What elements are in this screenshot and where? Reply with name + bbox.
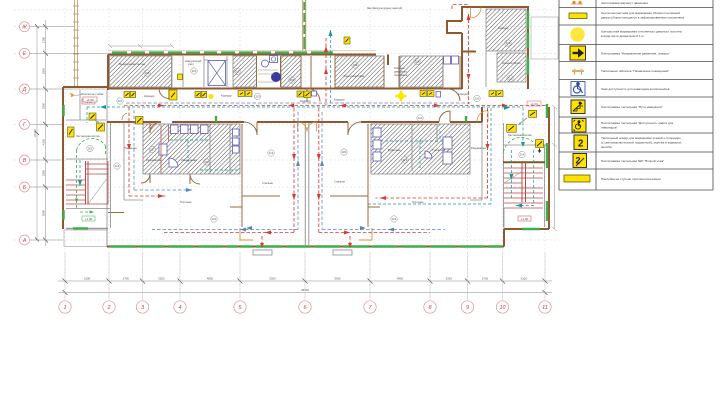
svg-text:218: 218 bbox=[204, 160, 209, 164]
svg-text:в виде круга диаметром 0,1 м: в виде круга диаметром 0,1 м bbox=[601, 34, 644, 38]
svg-text:Лента контрастная для маркиров: Лента контрастная для маркировки сборки … bbox=[601, 11, 680, 15]
svg-text:Тактильная табличка "Назначени: Тактильная табличка "Назначение помещени… bbox=[601, 69, 669, 73]
svg-text:(с светонакопительной подсветк: (с светонакопительной подсветкой), монта… bbox=[601, 141, 682, 145]
svg-text:Лестничная клетка: Лестничная клетка bbox=[508, 133, 532, 137]
svg-text:Пиктограмма тактильная №П "Вто: Пиктограмма тактильная №П "Второй этаж" bbox=[601, 159, 664, 163]
svg-text:3100: 3100 bbox=[521, 277, 528, 281]
svg-text:212: 212 bbox=[508, 77, 513, 81]
svg-text:2: 2 bbox=[578, 139, 584, 150]
svg-text:5300: 5300 bbox=[334, 277, 341, 281]
svg-text:+1.00: +1.00 bbox=[86, 98, 94, 102]
svg-text:Буфетная: Буфетная bbox=[388, 148, 401, 152]
svg-text:2700: 2700 bbox=[482, 277, 489, 281]
svg-text:Ж: Ж bbox=[21, 25, 27, 31]
svg-text:Гостиная: Гостиная bbox=[412, 200, 424, 204]
svg-text:219: 219 bbox=[269, 151, 274, 155]
svg-text:+1.00: +1.00 bbox=[521, 217, 529, 221]
svg-text:3080: 3080 bbox=[41, 209, 45, 216]
svg-text:2700: 2700 bbox=[123, 277, 130, 281]
svg-text:2900: 2900 bbox=[41, 67, 45, 74]
svg-text:207: 207 bbox=[235, 70, 240, 74]
svg-text:203: 203 bbox=[255, 95, 260, 99]
svg-text:222: 222 bbox=[212, 217, 217, 221]
svg-text:Коридор: Коридор bbox=[144, 94, 155, 98]
svg-text:201: 201 bbox=[118, 99, 123, 103]
svg-text:Умывальная: Умывальная bbox=[181, 158, 197, 162]
svg-text:Коридор: Коридор bbox=[300, 99, 311, 103]
svg-text:Розетка на стойке: Розетка на стойке bbox=[81, 92, 104, 96]
svg-text:+1.00: +1.00 bbox=[85, 217, 93, 221]
svg-text:Комната: Комната bbox=[394, 66, 405, 70]
svg-text:Спальня: Спальня bbox=[334, 180, 345, 184]
svg-text:1: 1 bbox=[63, 305, 66, 311]
svg-text:Знак доступности для инвалидов: Знак доступности для инвалидов-колясочни… bbox=[601, 87, 670, 91]
svg-text:220: 220 bbox=[342, 150, 347, 154]
svg-text:Медицинская сестра: Медицинская сестра bbox=[119, 62, 145, 66]
svg-text:221: 221 bbox=[403, 158, 408, 162]
svg-text:208: 208 bbox=[353, 63, 358, 67]
svg-text:21320: 21320 bbox=[33, 129, 37, 137]
svg-text:Гостиная: Гостиная bbox=[180, 200, 192, 204]
svg-text:Пиктограмма "Направление движе: Пиктограмма "Направление движения, повор… bbox=[601, 52, 671, 56]
svg-text:209: 209 bbox=[415, 60, 420, 64]
svg-text:215: 215 bbox=[115, 164, 120, 168]
svg-text:Лестничная клетка: Лестничная клетка bbox=[76, 134, 100, 138]
svg-text:11: 11 bbox=[542, 305, 548, 311]
svg-text:205: 205 bbox=[145, 71, 150, 75]
svg-text:инвалидов": инвалидов" bbox=[601, 126, 618, 130]
svg-text:Коридор: Коридор bbox=[221, 94, 232, 98]
svg-text:4: 4 bbox=[178, 305, 181, 311]
svg-text:4850: 4850 bbox=[397, 277, 404, 281]
svg-text:2900: 2900 bbox=[41, 102, 45, 109]
svg-text:Раздевалка: Раздевалка bbox=[471, 146, 486, 150]
svg-text:желоба: желоба bbox=[601, 145, 612, 149]
svg-text:Зал физкультурных занятий: Зал физкультурных занятий bbox=[367, 6, 403, 10]
svg-text:4105: 4105 bbox=[41, 138, 45, 145]
svg-text:Коридор: Коридор bbox=[498, 26, 509, 30]
svg-text:двери (сборки находятся в зафи: двери (сборки находятся в зафиксированно… bbox=[601, 16, 684, 20]
svg-text:2900: 2900 bbox=[41, 169, 45, 176]
svg-text:Комната белья: Комната белья bbox=[502, 61, 521, 65]
svg-text:223: 223 bbox=[392, 217, 397, 221]
svg-text:узел: узел bbox=[188, 63, 194, 66]
svg-text:персонала: персонала bbox=[394, 74, 408, 77]
svg-text:224: 224 bbox=[418, 116, 423, 120]
svg-text:Наклейка на ступени противоско: Наклейка на ступени противоскользящая bbox=[601, 177, 661, 181]
svg-text:Туалетная: Туалетная bbox=[432, 148, 445, 152]
svg-text:217: 217 bbox=[150, 148, 155, 152]
svg-text:Коридор: Коридор bbox=[334, 98, 345, 102]
svg-text:202: 202 bbox=[88, 147, 93, 151]
svg-text:Контрастная маркировка стеклян: Контрастная маркировка стеклянного дверн… bbox=[601, 30, 682, 34]
svg-text:204: 204 bbox=[192, 69, 197, 73]
svg-text:Пиктограмма тактильная "Пути э: Пиктограмма тактильная "Пути эвакуации" bbox=[601, 105, 663, 109]
svg-text:Приёмная: Приёмная bbox=[124, 146, 137, 150]
svg-text:2180: 2180 bbox=[41, 36, 45, 43]
svg-text:214: 214 bbox=[520, 153, 525, 157]
svg-text:А: А bbox=[22, 238, 27, 244]
svg-text:213: 213 bbox=[506, 41, 511, 45]
svg-text:3200: 3200 bbox=[158, 277, 165, 281]
svg-text:4850: 4850 bbox=[207, 277, 214, 281]
svg-text:9: 9 bbox=[466, 305, 469, 311]
svg-text:Раздевалка: Раздевалка bbox=[146, 158, 161, 162]
svg-text:Спальня: Спальня bbox=[262, 181, 273, 185]
svg-text:2: 2 bbox=[106, 305, 110, 311]
svg-text:пиктограмма маршрут движения: пиктограмма маршрут движения bbox=[601, 1, 648, 5]
svg-text:Д: Д bbox=[22, 87, 27, 93]
svg-text:3100: 3100 bbox=[84, 277, 91, 281]
svg-text:10: 10 bbox=[499, 305, 506, 311]
svg-text:210: 210 bbox=[475, 97, 480, 101]
svg-text:3200: 3200 bbox=[446, 277, 453, 281]
svg-text:Коридор: Коридор bbox=[458, 92, 469, 96]
svg-text:Тактильный номер для маркировк: Тактильный номер для маркировки этажей и… bbox=[601, 136, 681, 140]
svg-text:206: 206 bbox=[290, 78, 295, 82]
svg-text:Пиктограмма тактильная "Доступ: Пиктограмма тактильная "Доступность лифт… bbox=[601, 121, 673, 125]
svg-text:Электрощитовая: Электрощитовая bbox=[343, 74, 365, 78]
svg-text:5300: 5300 bbox=[269, 277, 276, 281]
